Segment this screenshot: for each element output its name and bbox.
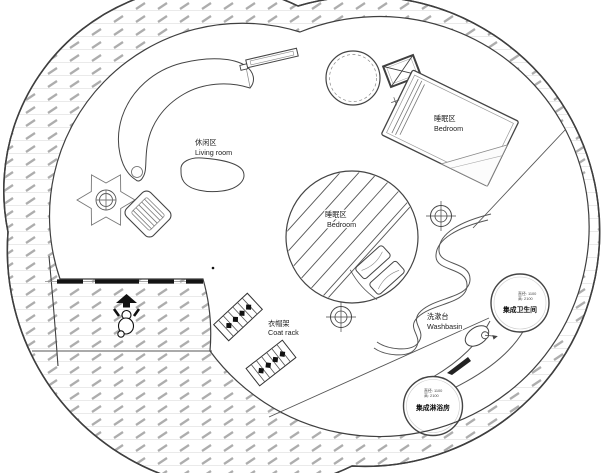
round-bed [286, 171, 418, 303]
upper-bedroom-label-zh: 睡眠区 [434, 114, 456, 123]
floor-plan-drawing: 休闲区 Living room 睡眠区 Bedroom [0, 0, 611, 473]
floor-plan-canvas: 休闲区 Living room 睡眠区 Bedroom [0, 0, 611, 473]
washbasin-label-zh: 洗漱台 [427, 312, 449, 321]
center-bedroom-label-en: Bedroom [327, 220, 356, 229]
reference-dot [212, 267, 215, 270]
toilet-pod-label: 集成卫生间 [502, 305, 537, 314]
living-room-label-zh: 休闲区 [195, 138, 217, 147]
center-bedroom-label-zh: 睡眠区 [325, 210, 347, 219]
toilet-pod: 直径: 1100 高: 2100 集成卫生间 [491, 274, 549, 332]
washbasin-label-en: Washbasin [427, 322, 462, 331]
shower-pod-spec-height: 高: 2100 [424, 393, 440, 398]
toilet-pod-spec-height: 高: 2100 [518, 296, 534, 301]
shower-pod-label: 集成淋浴房 [415, 403, 450, 412]
coat-rack-label-zh: 衣帽架 [268, 319, 290, 328]
upper-bedroom-label-en: Bedroom [434, 124, 463, 133]
living-room-label-en: Living room [195, 148, 232, 157]
shower-pod: 直径: 1100 高: 2100 集成淋浴房 [404, 377, 463, 436]
round-table [326, 51, 380, 105]
coat-rack-label-en: Coat rack [268, 328, 299, 337]
